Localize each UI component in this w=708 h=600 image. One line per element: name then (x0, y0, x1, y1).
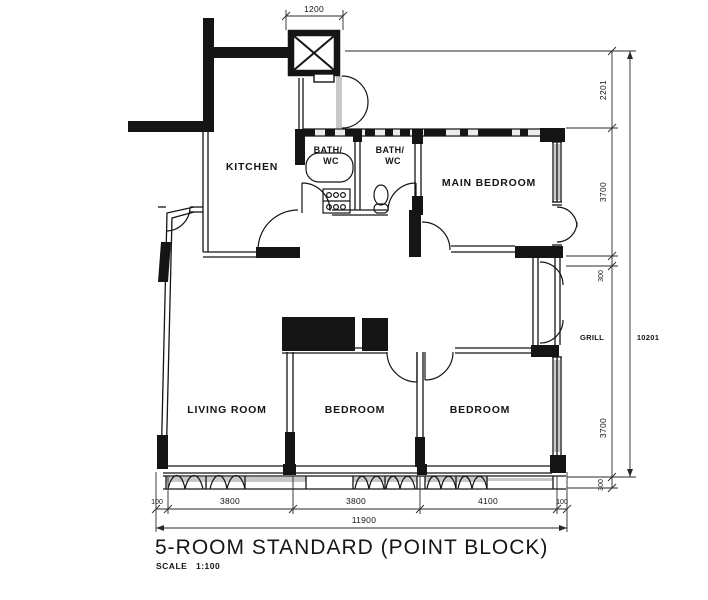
dim-label-bottom-2: 3800 (220, 496, 240, 506)
dim-label-lift-width: 1200 (304, 4, 324, 14)
floorplan-sheet: 1200 2201 3700 300 3700 300 10201 GRILL … (0, 0, 708, 600)
room-label-bath1-line1: BATH/ (314, 145, 343, 155)
dim-label-right-2: 3700 (598, 182, 608, 202)
scale-label: SCALE (156, 561, 187, 571)
dim-label-right-4: 3700 (598, 418, 608, 438)
dim-label-bottom-total: 11900 (352, 515, 377, 525)
plan-title: 5-ROOM STANDARD (POINT BLOCK) (155, 536, 548, 559)
scale-value: 1:100 (196, 561, 220, 571)
dim-label-right-total: 10201 (637, 333, 659, 342)
dim-label-bottom-1: 100 (151, 499, 163, 506)
dim-label-right-5: 300 (598, 479, 605, 491)
dim-label-bottom-4: 4100 (478, 496, 498, 506)
kitchen-door-threshold (256, 247, 300, 258)
dim-label-right-1: 2201 (598, 80, 608, 100)
floorplan-drawing: 1200 2201 3700 300 3700 300 10201 GRILL … (0, 0, 708, 600)
room-label-bedroom-right: BEDROOM (450, 404, 510, 416)
room-label-bath1-line2: WC (323, 156, 339, 166)
room-label-kitchen: KITCHEN (226, 161, 278, 173)
dim-label-bottom-3: 3800 (346, 496, 366, 506)
dim-label-bottom-5: 100 (556, 499, 568, 506)
room-label-main-bedroom: MAIN BEDROOM (442, 177, 536, 189)
room-label-living-room: LIVING ROOM (187, 404, 266, 416)
lift-door (314, 74, 334, 82)
wardrobe-small (362, 318, 388, 351)
room-label-bedroom-middle: BEDROOM (325, 404, 385, 416)
room-label-bath2-line1: BATH/ (376, 145, 405, 155)
room-label-bath2-line2: WC (385, 156, 401, 166)
grille-label: GRILL (580, 333, 604, 342)
dim-label-right-3: 300 (598, 270, 605, 282)
wardrobe-large (282, 317, 355, 351)
